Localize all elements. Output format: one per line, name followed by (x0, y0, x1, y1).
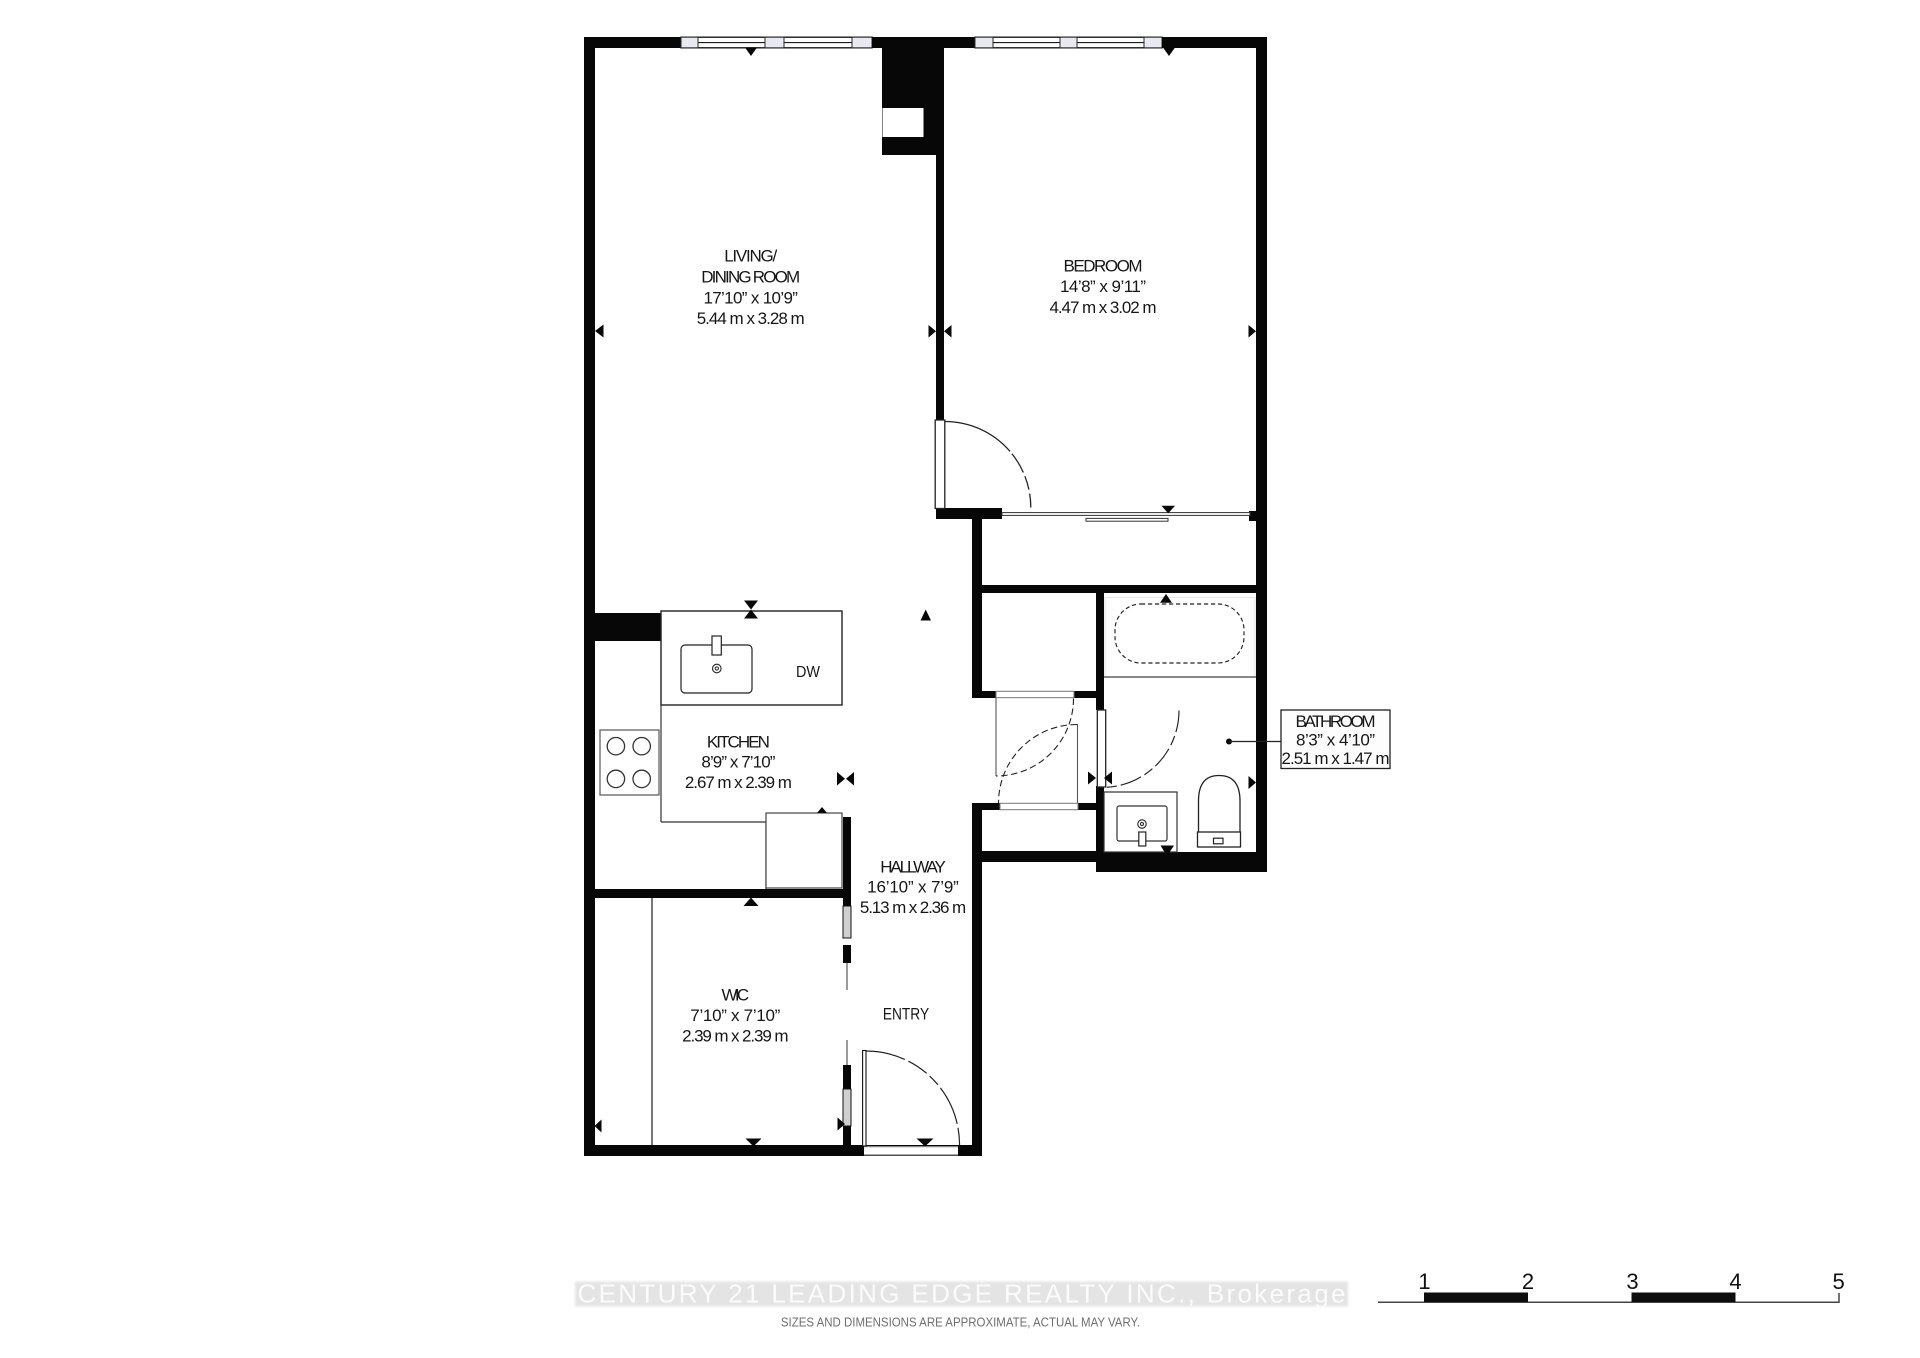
svg-text:1: 1 (1418, 1269, 1430, 1294)
svg-text:DW: DW (796, 664, 821, 681)
svg-text:16’10” x 7’9”: 16’10” x 7’9” (867, 877, 959, 896)
svg-text:4.47 m x 3.02 m: 4.47 m x 3.02 m (1050, 298, 1157, 317)
svg-text:5: 5 (1832, 1269, 1844, 1294)
svg-text:2.39 m x 2.39 m: 2.39 m x 2.39 m (682, 1026, 788, 1045)
svg-text:BEDROOM: BEDROOM (1064, 256, 1143, 275)
svg-text:2.67 m x 2.39 m: 2.67 m x 2.39 m (685, 773, 792, 792)
svg-text:2.51 m x 1.47 m: 2.51 m x 1.47 m (1282, 749, 1390, 768)
svg-text:4: 4 (1729, 1269, 1741, 1294)
svg-text:7’10” x 7’10”: 7’10” x 7’10” (690, 1006, 780, 1025)
svg-text:DINING ROOM: DINING ROOM (701, 267, 800, 286)
svg-text:LIVING/: LIVING/ (724, 246, 777, 265)
svg-text:8’3” x 4’10”: 8’3” x 4’10” (1296, 730, 1375, 749)
svg-text:14’8” x 9’11”: 14’8” x 9’11” (1060, 277, 1146, 296)
svg-text:ENTRY: ENTRY (883, 1005, 929, 1024)
svg-text:CENTURY 21 LEADING EDGE REALTY: CENTURY 21 LEADING EDGE REALTY INC., Bro… (578, 1279, 1346, 1309)
svg-text:KITCHEN: KITCHEN (707, 733, 770, 752)
svg-text:HALLWAY: HALLWAY (880, 857, 946, 876)
svg-text:BATHROOM: BATHROOM (1296, 712, 1376, 731)
svg-text:5.13 m x 2.36 m: 5.13 m x 2.36 m (860, 898, 966, 917)
svg-text:2: 2 (1522, 1269, 1534, 1294)
svg-text:3: 3 (1626, 1269, 1638, 1294)
svg-text:WIC: WIC (722, 985, 750, 1004)
svg-text:SIZES AND DIMENSIONS ARE APPRO: SIZES AND DIMENSIONS ARE APPROXIMATE, AC… (781, 1316, 1140, 1330)
svg-text:8’9” x 7’10”: 8’9” x 7’10” (701, 752, 775, 771)
svg-text:17’10” x 10’9”: 17’10” x 10’9” (703, 288, 798, 307)
svg-text:5.44 m x 3.28 m: 5.44 m x 3.28 m (697, 309, 805, 328)
